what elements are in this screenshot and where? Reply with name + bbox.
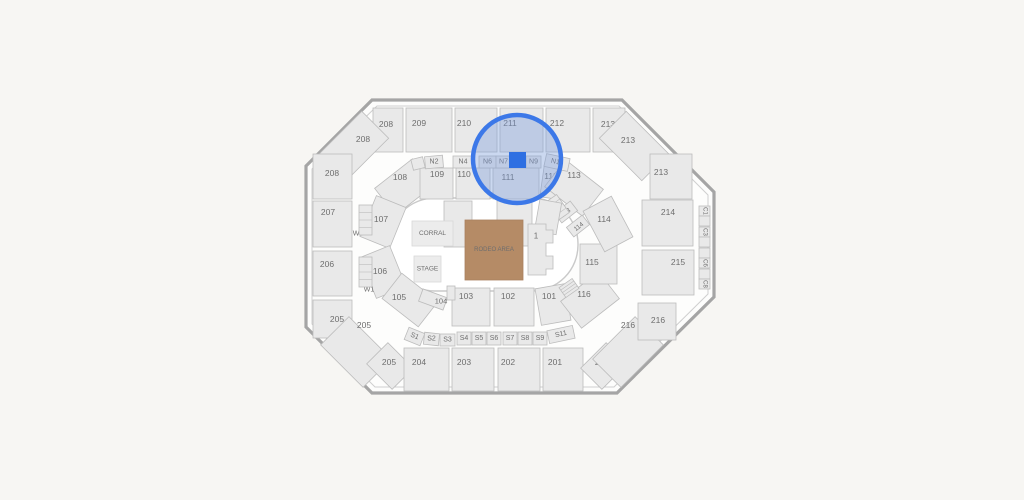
section-c3[interactable]: C3 [699, 227, 710, 237]
section-label: S4 [460, 335, 469, 342]
section-label: 116 [577, 289, 591, 299]
section-label: 216 [621, 320, 635, 330]
section-s9[interactable]: S9 [533, 332, 547, 345]
seatmap[interactable]: 2082082082092102112122132132132072062052… [0, 0, 1024, 500]
aisle-section-shape [699, 216, 710, 226]
section-203[interactable]: 203 [452, 348, 494, 391]
section-label: S5 [475, 335, 484, 342]
section-label: S9 [536, 335, 545, 342]
section-c1[interactable]: C1 [699, 206, 710, 216]
section-label: S3 [443, 337, 452, 344]
section-label: 213 [621, 135, 635, 145]
section-201[interactable]: 201 [543, 348, 583, 391]
section-202[interactable]: 202 [498, 348, 540, 391]
section-label: W1 [364, 287, 375, 294]
section-label: N4 [459, 159, 468, 166]
section-213[interactable]: 213 [650, 154, 692, 199]
section-label: 110 [457, 169, 471, 179]
section-s6[interactable]: S6 [487, 332, 501, 345]
section-label: STAGE [417, 266, 439, 273]
seatmap-page: 2082082082092102112122132132132072062052… [0, 0, 1024, 500]
section-label: 113 [567, 170, 581, 180]
section-label: 213 [654, 167, 668, 177]
aisle-section [699, 248, 710, 258]
section-s2[interactable]: S2 [423, 332, 439, 346]
section-202-shape [498, 348, 540, 391]
section-label: 106 [373, 266, 387, 276]
section-label: N2 [430, 159, 439, 166]
section-109[interactable]: 109 [420, 168, 453, 199]
aisle-section [699, 269, 710, 279]
section-207[interactable]: 207 [313, 201, 352, 247]
stage-area[interactable]: STAGE [414, 256, 441, 282]
section-215[interactable]: 215 [642, 250, 694, 295]
section-label: 203 [457, 357, 471, 367]
section-label: 215 [671, 257, 685, 267]
section-label: C3 [702, 228, 708, 236]
section-206-shape [313, 251, 352, 296]
section-label: 108 [393, 172, 407, 182]
selected-section[interactable] [509, 152, 526, 168]
section-n4[interactable]: N4 [453, 156, 473, 168]
section-label: 102 [501, 291, 515, 301]
section-s7[interactable]: S7 [503, 332, 517, 345]
stairs [359, 205, 372, 235]
section-103[interactable]: 103 [452, 288, 490, 326]
section-label: S2 [427, 336, 436, 343]
section-label: 202 [501, 357, 515, 367]
section-201-shape [543, 348, 583, 391]
corral-area[interactable]: CORRAL [412, 221, 453, 246]
section-label: S7 [506, 335, 515, 342]
aisle-section [411, 157, 425, 171]
section-209-shape [406, 108, 452, 152]
section-209[interactable]: 209 [406, 108, 452, 152]
section-214[interactable]: 214 [642, 200, 693, 246]
aisle-section [699, 216, 710, 226]
section-206[interactable]: 206 [313, 251, 352, 296]
section-label: 208 [325, 168, 339, 178]
section-label: 208 [356, 134, 370, 144]
section-label: 206 [320, 259, 334, 269]
section-s5[interactable]: S5 [472, 332, 486, 345]
section-label: 205 [330, 314, 344, 324]
section-label: 204 [412, 357, 426, 367]
section-label: RODEO AREA [474, 247, 514, 253]
section-c6[interactable]: C6 [699, 258, 710, 268]
rodeo-area[interactable]: RODEO AREA [465, 220, 523, 280]
section-label: S6 [490, 335, 499, 342]
section-s3[interactable]: S3 [440, 334, 455, 346]
section-216[interactable]: 216 [638, 303, 676, 340]
section-label: CORRAL [419, 230, 446, 237]
aisle-section [699, 237, 710, 247]
section-204-shape [404, 348, 449, 391]
aisle-section-shape [411, 157, 425, 171]
section-label: 216 [651, 315, 665, 325]
section-label: 210 [457, 118, 471, 128]
section-label: C6 [702, 259, 708, 267]
section-s8[interactable]: S8 [518, 332, 532, 345]
section-label: C8 [702, 280, 708, 288]
section-w1[interactable]: W1 [364, 287, 375, 294]
stairs [359, 257, 372, 287]
section-label: 205 [382, 357, 396, 367]
aisle-section-shape [699, 248, 710, 258]
section-label: 208 [379, 119, 393, 129]
section-label: 107 [374, 214, 388, 224]
section-label: 105 [392, 292, 406, 302]
section-label: 214 [661, 207, 675, 217]
section-c8[interactable]: C8 [699, 279, 710, 289]
section-label: C1 [702, 207, 708, 215]
section-label: S8 [521, 335, 530, 342]
section-label: 114 [597, 214, 611, 224]
section-label: 212 [550, 118, 564, 128]
section-label: 103 [459, 291, 473, 301]
section-115[interactable]: 115 [580, 244, 617, 284]
section-label: 207 [321, 207, 335, 217]
section-n2[interactable]: N2 [425, 155, 444, 169]
aisle-section-shape [447, 286, 455, 300]
section-s4[interactable]: S4 [457, 332, 471, 345]
section-208[interactable]: 208 [313, 154, 352, 199]
section-215-shape [642, 250, 694, 295]
aisle-section [447, 286, 455, 300]
aisle-section-shape [699, 269, 710, 279]
section-label: 104 [435, 297, 448, 306]
section-204[interactable]: 204 [404, 348, 449, 391]
aisle-section-shape [699, 237, 710, 247]
section-label: 115 [585, 257, 599, 267]
section-label: 1 [534, 232, 539, 241]
section-102[interactable]: 102 [494, 288, 534, 326]
section-label: 201 [548, 357, 562, 367]
section-label: 101 [542, 291, 556, 301]
section-203-shape [452, 348, 494, 391]
section-label: 109 [430, 169, 444, 179]
section-label: 209 [412, 118, 426, 128]
section-label: 205 [357, 320, 371, 330]
